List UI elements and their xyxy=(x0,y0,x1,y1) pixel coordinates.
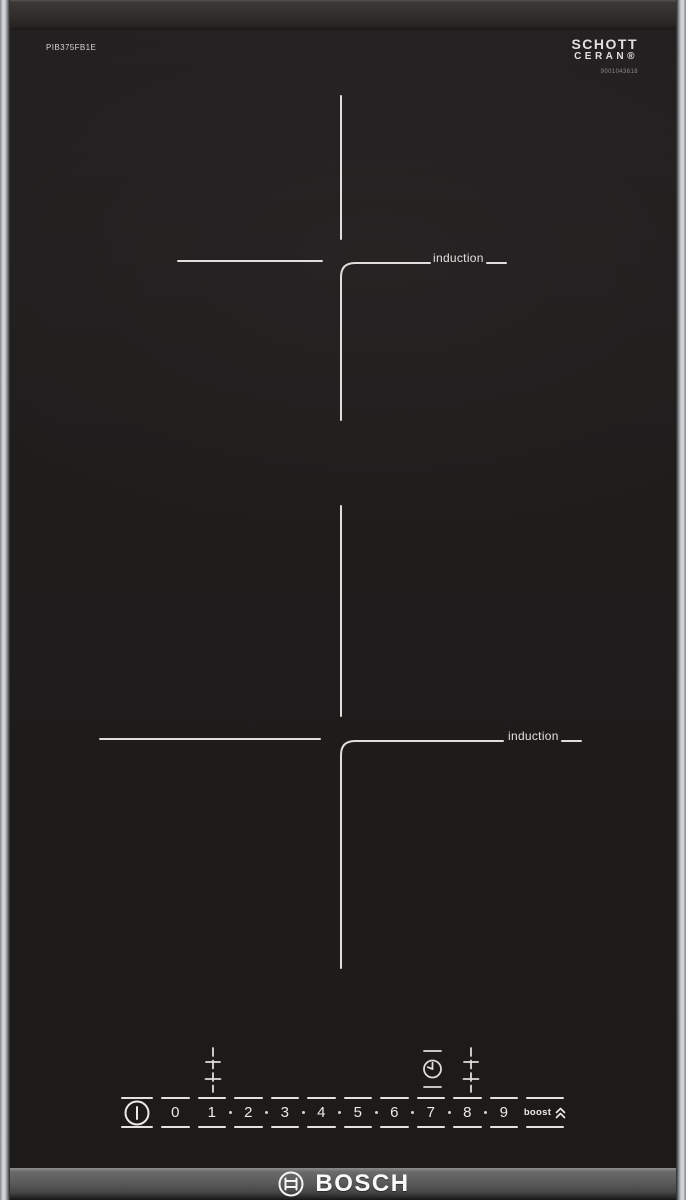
material-code: 9001043618 xyxy=(571,69,638,75)
level-separator-dot xyxy=(338,1111,341,1114)
zone-select-icon[interactable] xyxy=(203,1046,223,1094)
level-separator-dot xyxy=(229,1111,232,1114)
top-bezel xyxy=(0,0,686,30)
zone-rear-induction-label: induction xyxy=(433,252,484,264)
left-edge-trim xyxy=(0,0,10,1200)
model-number: PIB375FB1E xyxy=(46,43,96,52)
bosch-wordmark: BOSCH xyxy=(315,1172,409,1196)
level-key-1[interactable]: 1 xyxy=(194,1097,231,1128)
ceran-glass-surface xyxy=(0,30,686,1170)
timer-clock-icon[interactable] xyxy=(421,1049,445,1089)
level-key-7[interactable]: 7 xyxy=(413,1097,450,1128)
level-key-4[interactable]: 4 xyxy=(303,1097,340,1128)
level-separator-dot xyxy=(448,1111,451,1114)
bosch-induction-hob: PIB375FB1E SCHOTT CERAN® 9001043618 indu… xyxy=(0,0,686,1200)
level-key-8[interactable]: 8 xyxy=(449,1097,486,1128)
zone-front-induction-label: induction xyxy=(508,730,559,742)
power-level-slider[interactable]: 0 1 2 3 4 5 6 7 8 9 boost xyxy=(117,1097,568,1128)
level-separator-dot xyxy=(302,1111,305,1114)
level-key-5[interactable]: 5 xyxy=(340,1097,377,1128)
power-key[interactable] xyxy=(117,1097,157,1128)
level-separator-dot xyxy=(411,1111,414,1114)
ceran-text: CERAN® xyxy=(571,51,638,62)
level-key-0[interactable]: 0 xyxy=(157,1097,194,1128)
right-edge-trim xyxy=(676,0,686,1200)
level-separator-dot xyxy=(375,1111,378,1114)
double-chevron-up-icon xyxy=(555,1107,566,1119)
schott-ceran-logo: SCHOTT CERAN® 9001043618 xyxy=(571,37,638,75)
power-standby-icon xyxy=(123,1099,151,1127)
bosch-logo: BOSCH xyxy=(276,1169,409,1199)
bosch-emblem-icon xyxy=(276,1169,306,1199)
level-key-2[interactable]: 2 xyxy=(230,1097,267,1128)
zone-select-icon[interactable] xyxy=(461,1046,481,1094)
front-trim-band: BOSCH xyxy=(0,1168,686,1200)
level-key-3[interactable]: 3 xyxy=(267,1097,304,1128)
schott-text: SCHOTT xyxy=(571,37,638,51)
level-key-9[interactable]: 9 xyxy=(486,1097,523,1128)
level-separator-dot xyxy=(265,1111,268,1114)
boost-key[interactable]: boost xyxy=(522,1097,568,1128)
level-key-6[interactable]: 6 xyxy=(376,1097,413,1128)
level-separator-dot xyxy=(484,1111,487,1114)
